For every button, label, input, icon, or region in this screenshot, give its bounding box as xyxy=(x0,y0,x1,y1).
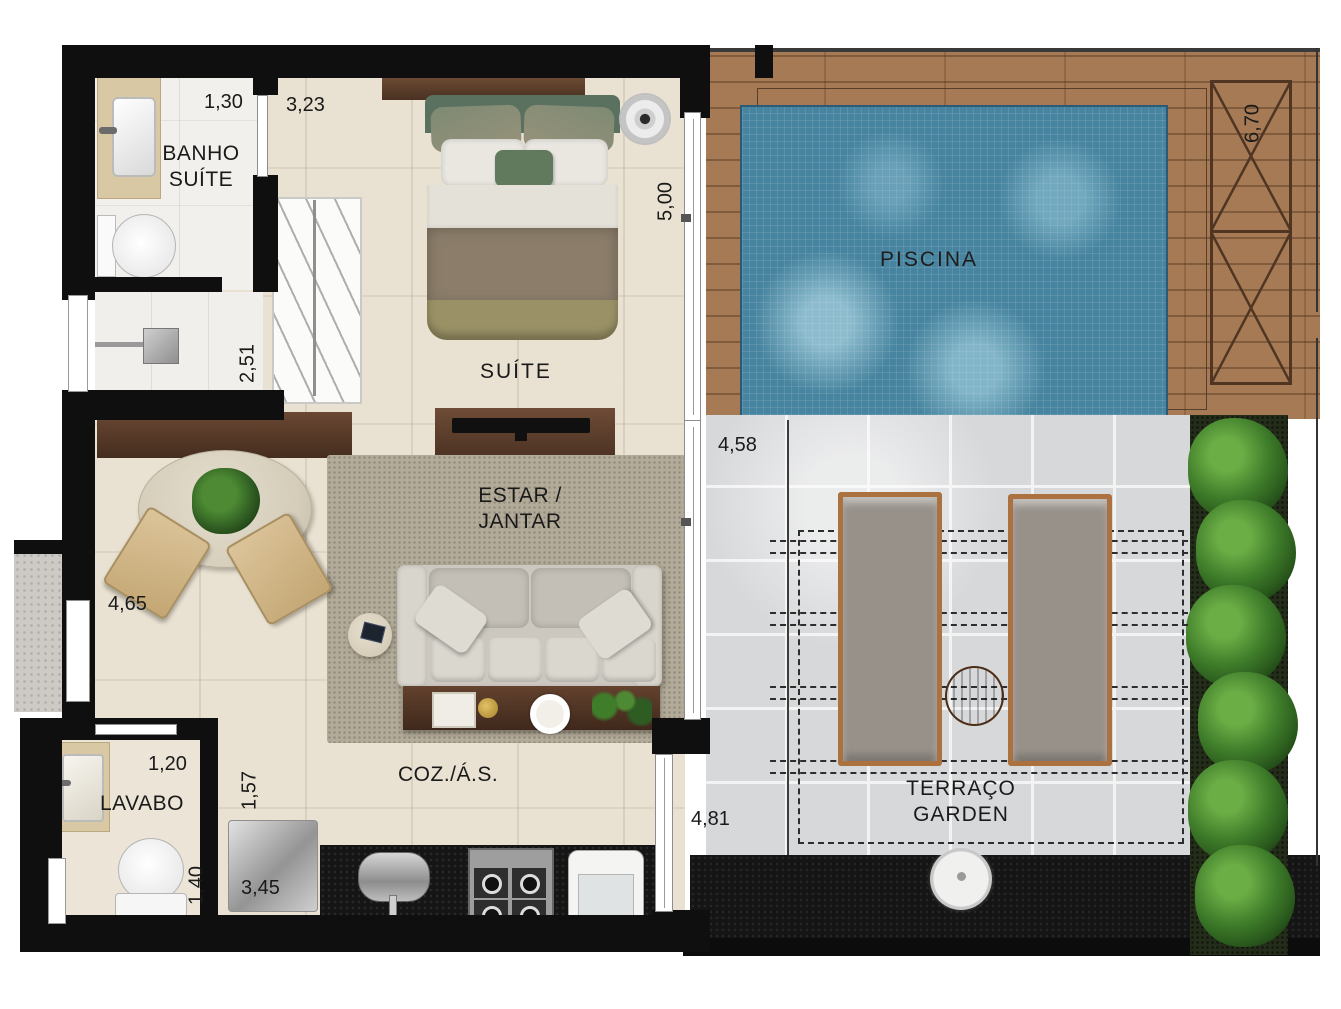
lavabo-window xyxy=(48,858,66,924)
pergola-beam-dashed-line xyxy=(770,540,1188,542)
wall xyxy=(652,718,710,754)
wall xyxy=(253,175,278,292)
bathroom-window xyxy=(68,295,88,392)
room-label-estar-jantar: ESTAR / JANTAR xyxy=(468,483,572,535)
room-label-piscina: PISCINA xyxy=(880,248,978,272)
outdoor-sink-drain xyxy=(957,872,966,881)
window-handle-icon xyxy=(681,214,691,222)
dimension-3-23: 3,23 xyxy=(286,94,325,117)
floor-plan: BANHO SUÍTE SUÍTE ESTAR / JANTAR COZ./Á.… xyxy=(0,0,1341,1009)
wardrobe-closet xyxy=(272,197,362,404)
lavabo-door xyxy=(95,724,177,735)
pergola-beam-dashed-line xyxy=(770,772,1188,774)
dimension-1-57: 1,57 xyxy=(239,765,262,817)
room-label-terraco-garden: TERRAÇO GARDEN xyxy=(900,776,1022,828)
wall xyxy=(652,910,710,952)
wall xyxy=(253,78,278,95)
dimension-6-70: 6,70 xyxy=(1242,98,1265,150)
sun-lounger xyxy=(1008,494,1112,766)
decor-dish xyxy=(530,694,570,734)
projection-line-vertical xyxy=(787,420,789,855)
dimension-4-65: 4,65 xyxy=(108,593,147,616)
bed-blanket xyxy=(427,228,618,305)
wall xyxy=(62,390,284,420)
terraco-line2: GARDEN xyxy=(913,803,1009,826)
lavabo-sink xyxy=(62,754,104,822)
decor-plants xyxy=(592,690,652,726)
shower-arm xyxy=(95,342,143,347)
wall xyxy=(755,45,773,78)
decor-bowl xyxy=(478,698,498,718)
burner-icon xyxy=(482,874,502,894)
window-handle-icon xyxy=(681,518,691,526)
dimension-3-45: 3,45 xyxy=(241,877,280,900)
pergola-beam-dashed-line xyxy=(770,624,1188,626)
kitchen-terrace-door xyxy=(655,754,673,912)
dimension-line-right xyxy=(1316,48,1318,312)
burner-icon xyxy=(520,874,540,894)
decor-tray xyxy=(432,692,476,728)
window-living xyxy=(684,420,701,720)
terraco-line1: TERRAÇO xyxy=(906,777,1016,800)
window-suite xyxy=(684,112,701,422)
ceiling-fan-icon xyxy=(621,95,669,143)
bed-blanket-band xyxy=(427,300,618,340)
pergola-beam-dashed-line xyxy=(770,612,1188,614)
wall xyxy=(62,45,710,78)
dimension-1-20: 1,20 xyxy=(148,753,187,776)
bathroom-door xyxy=(257,95,268,177)
dimension-1-40: 1,40 xyxy=(186,860,209,912)
room-label-suite: SUÍTE xyxy=(480,360,552,384)
tv-base xyxy=(515,433,527,441)
wall xyxy=(200,718,218,948)
banho-line2: SUÍTE xyxy=(169,168,233,191)
estar-line2: JANTAR xyxy=(478,510,561,533)
shrub xyxy=(1198,672,1298,774)
shrub xyxy=(1195,845,1295,947)
entry-door xyxy=(66,600,90,702)
dimension-4-58: 4,58 xyxy=(718,434,757,457)
closet-rail xyxy=(313,200,316,396)
shower-head-icon xyxy=(143,328,179,364)
bed-cushion xyxy=(495,150,553,187)
bathroom-sink xyxy=(112,97,156,177)
dimension-2-51: 2,51 xyxy=(237,338,260,390)
pergola-beam-dashed-line xyxy=(770,760,1188,762)
pergola-beam-dashed-line xyxy=(770,552,1188,554)
entry-corridor-floor xyxy=(14,552,62,712)
outdoor-side-table xyxy=(947,668,1002,724)
toilet-bowl xyxy=(112,214,176,278)
dimension-line-right xyxy=(1316,338,1318,866)
bathroom-faucet-icon xyxy=(99,127,117,134)
bed-sheet xyxy=(427,185,618,232)
dimension-4-81: 4,81 xyxy=(691,808,730,831)
room-label-banho-suite: BANHO SUÍTE xyxy=(155,141,247,193)
dimension-1-30: 1,30 xyxy=(204,91,243,114)
banho-line1: BANHO xyxy=(162,142,239,165)
sofa-seat-cushion xyxy=(488,638,542,682)
sun-lounger xyxy=(838,492,942,766)
estar-line1: ESTAR / xyxy=(478,484,562,507)
wall xyxy=(62,45,95,300)
tv xyxy=(452,418,590,433)
wall xyxy=(14,540,62,554)
room-label-lavabo: LAVABO xyxy=(100,792,184,816)
wall xyxy=(62,277,222,292)
room-label-cozinha: COZ./Á.S. xyxy=(398,763,498,787)
wall xyxy=(20,915,660,952)
dimension-5-00: 5,00 xyxy=(655,176,678,228)
